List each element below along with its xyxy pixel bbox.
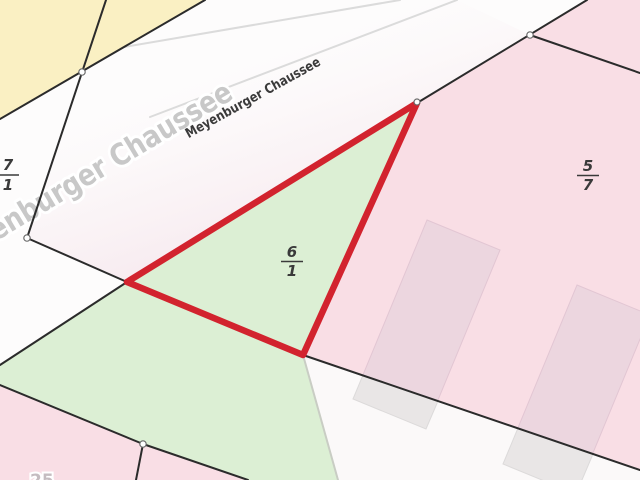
svg-text:7: 7 <box>3 156 14 174</box>
svg-text:5: 5 <box>583 157 593 175</box>
map-canvas[interactable]: Meyenburger Chaussee 7 <box>0 0 640 480</box>
vertex-marker <box>140 441 146 447</box>
vertex-marker <box>24 235 30 241</box>
svg-text:6: 6 <box>287 243 297 261</box>
house-number-partial: 25 <box>30 471 54 480</box>
vertex-marker <box>527 32 533 38</box>
svg-text:7: 7 <box>583 176 594 194</box>
vertex-marker <box>79 69 85 75</box>
vertex-marker <box>414 99 420 105</box>
svg-text:1: 1 <box>287 262 297 280</box>
cadastral-map-view[interactable]: Meyenburger Chaussee 7 <box>0 0 640 480</box>
svg-text:1: 1 <box>3 176 13 194</box>
